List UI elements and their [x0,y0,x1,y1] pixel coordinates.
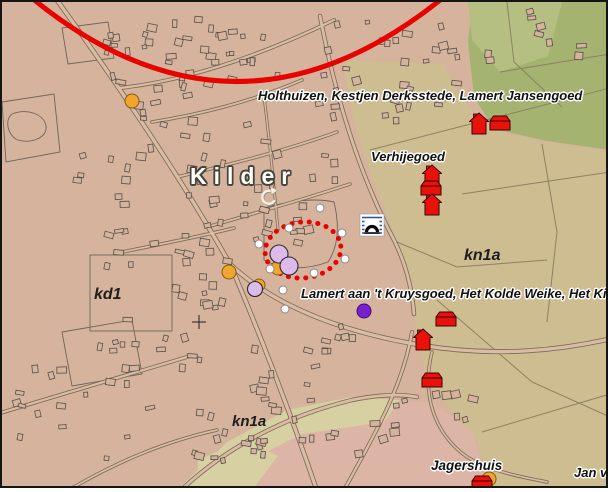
orange-dot-marker [222,265,236,279]
arch-monument-icon [360,214,384,236]
white-dot-marker [255,240,263,248]
white-dot-marker [338,229,346,237]
red-barn-icon [421,181,441,195]
white-dot-marker [281,305,289,313]
white-dot-marker [310,269,318,277]
purple-dot-marker [357,304,371,318]
red-barn-icon [490,116,510,130]
white-dot-marker [285,224,293,232]
area-code-kd1: kd1 [94,286,122,304]
white-dot-marker [266,265,274,273]
farm-label-kruysgoed: Lamert aan 't Kruysgoed, Het Kolde Weike… [301,287,608,301]
white-dot-marker [316,204,324,212]
red-barn-icon [436,312,456,326]
topographic-map: Kilder Holthuizen, Kestjen Derksstede, L… [0,0,608,488]
map-canvas [2,2,608,488]
map-screenshot: Kilder Holthuizen, Kestjen Derksstede, L… [0,0,612,492]
area-code-kn1a-south: kn1a [232,413,266,430]
farm-label-jagershuis: Jagershuis [431,459,502,474]
white-dot-marker [279,286,287,294]
red-barn-icon [422,373,442,387]
place-name-label: Kilder [190,163,297,190]
plus-cross-icon [192,315,206,329]
lavender-dot-marker [248,282,263,297]
farm-label-holthuizen: Holthuizen, Kestjen Derksstede, Lamert J… [258,89,582,103]
area-code-kn1a-east: kn1a [464,247,500,265]
farm-label-jan-van: Jan va [574,466,608,480]
red-barn-icon [472,476,492,488]
orange-dot-marker [125,94,139,108]
white-dot-marker [341,255,349,263]
farm-label-verhijegoed: Verhijegoed [371,150,445,164]
lavender-dot-marker [280,257,298,275]
